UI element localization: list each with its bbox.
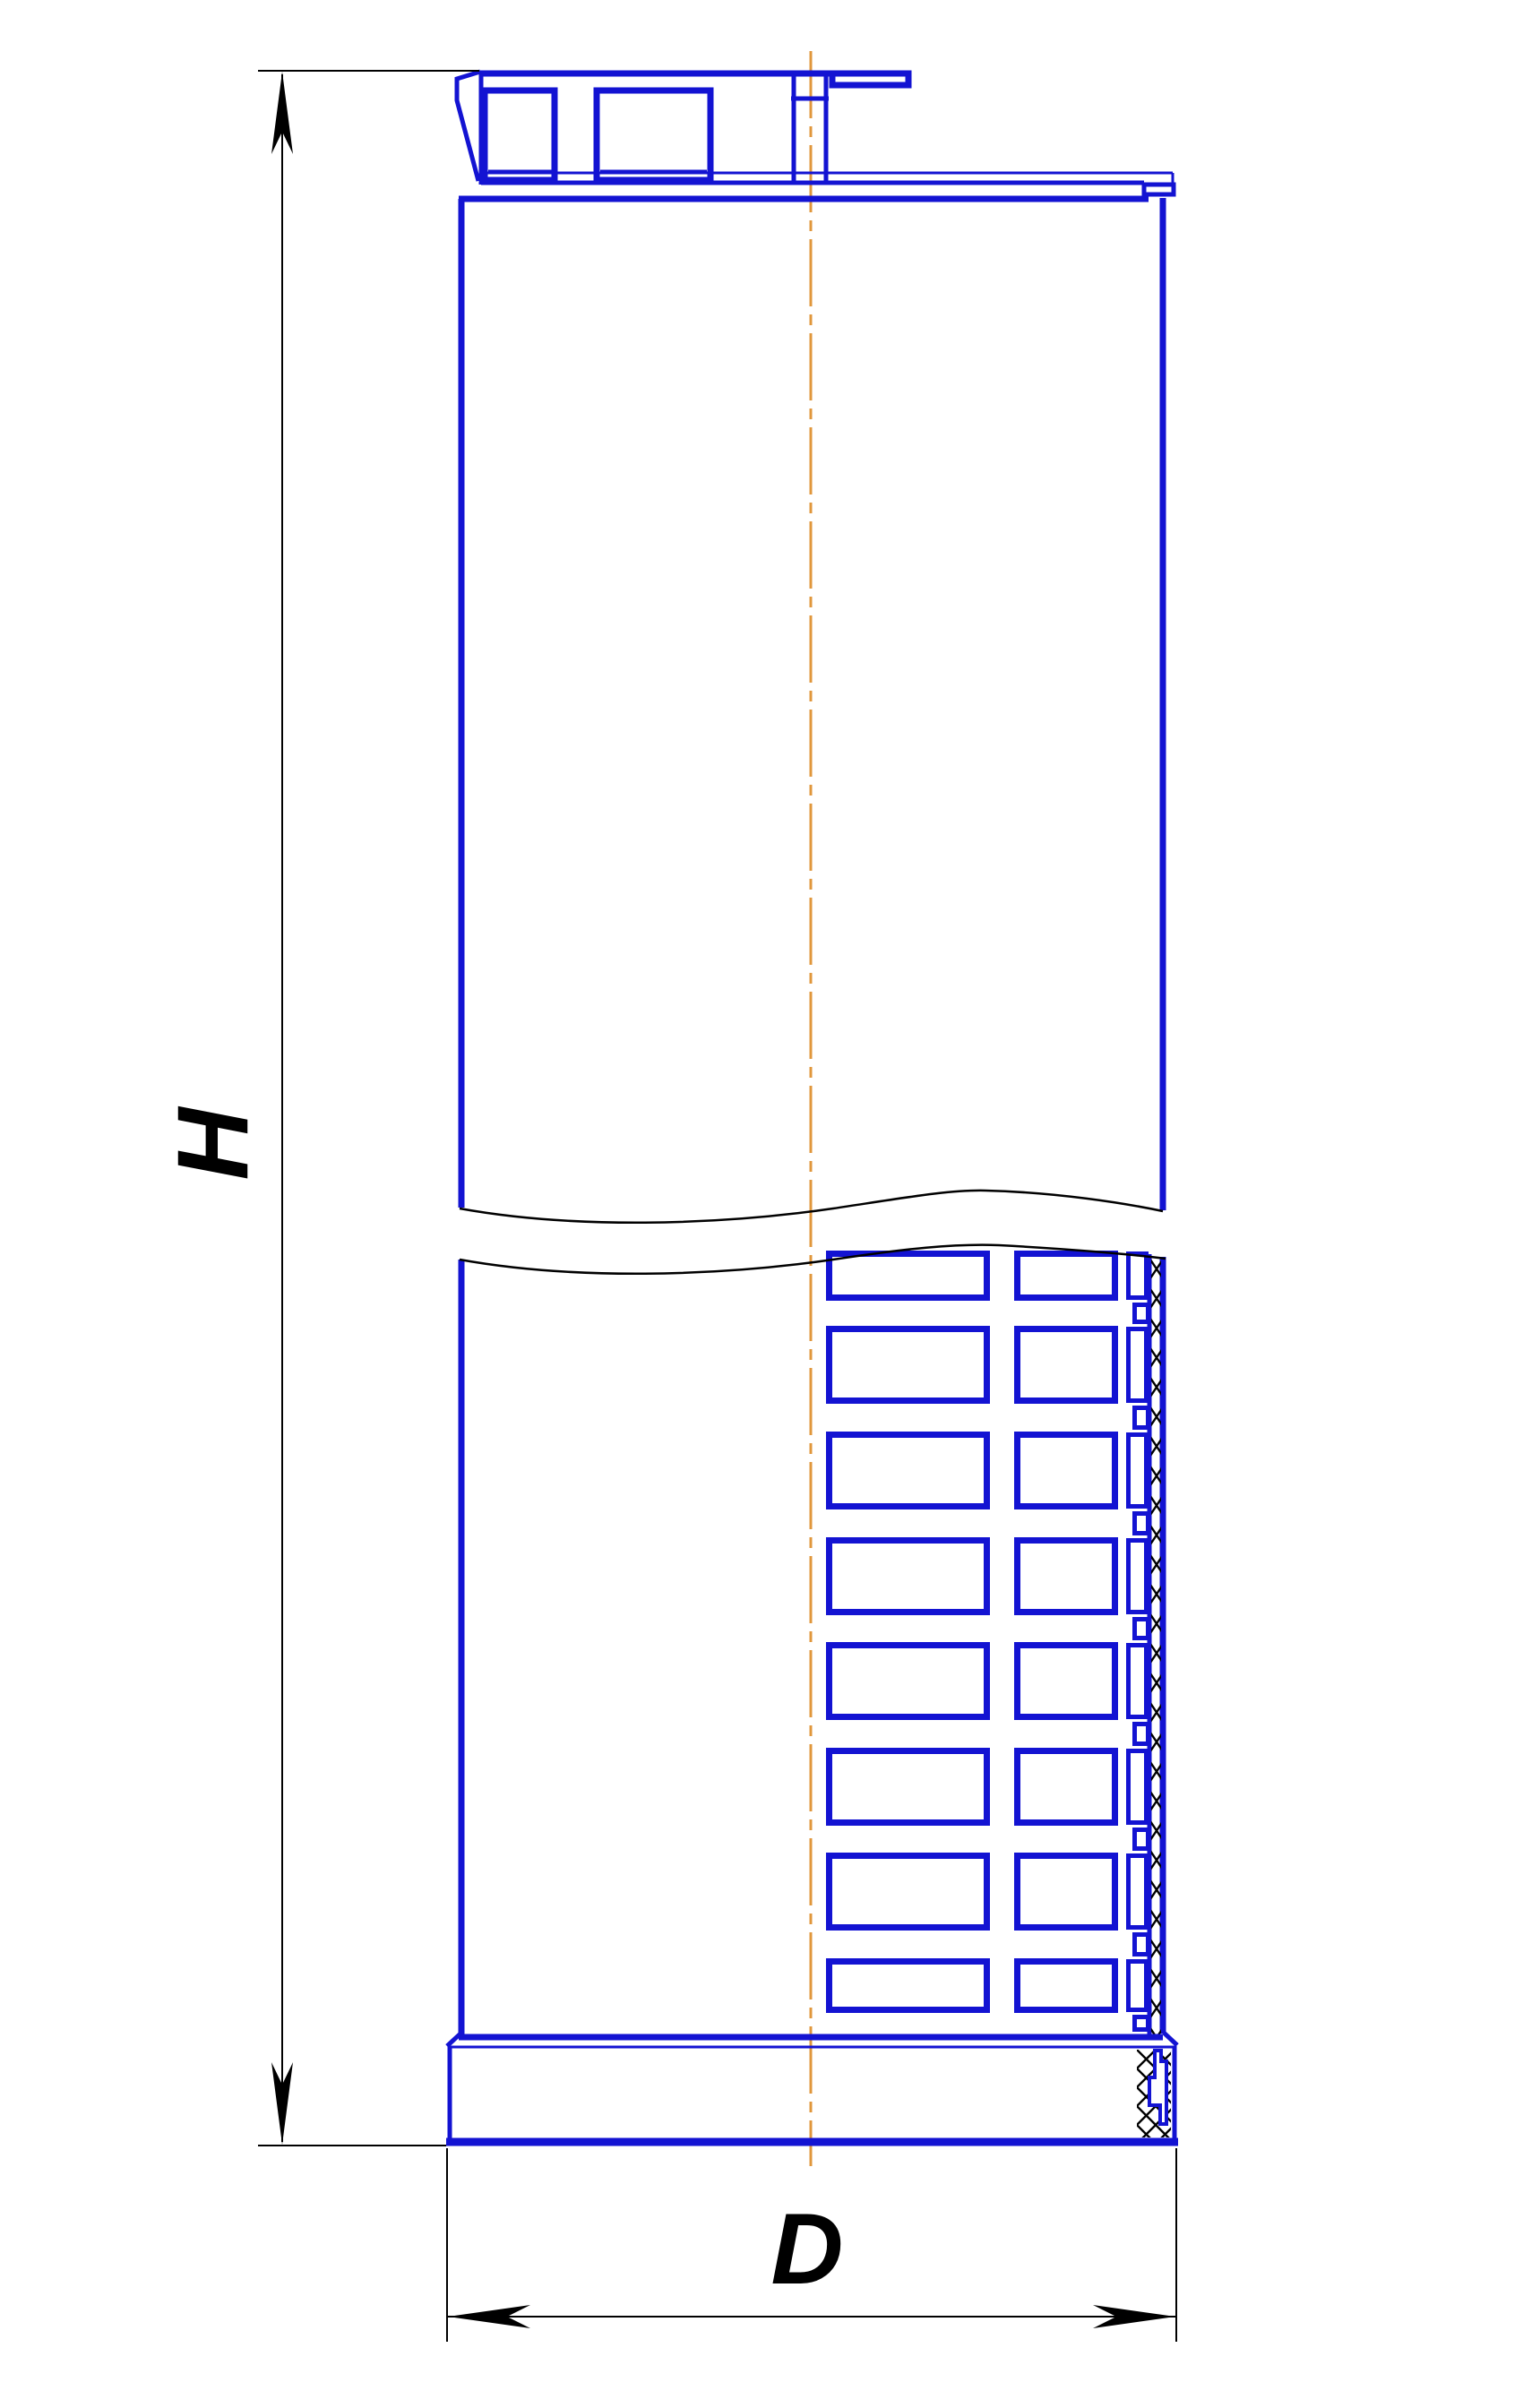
- cap-window-2: [597, 90, 710, 180]
- pleat-cell: [830, 1254, 987, 1298]
- cap-window-1: [485, 90, 555, 180]
- flange-left-chamfer: [447, 2034, 460, 2046]
- pleat-cell: [1018, 1435, 1115, 1507]
- pleat-grid: [830, 1254, 1149, 2030]
- cap-left-clip: [457, 72, 480, 181]
- pleat-cell: [830, 1856, 987, 1928]
- pleat-cell: [830, 1541, 987, 1612]
- pleat-fold-notch: [1135, 1830, 1149, 1849]
- technical-drawing: H D: [0, 0, 1523, 2408]
- pleat-cell: [830, 1646, 987, 1717]
- pleat-fold-notch: [1135, 1514, 1149, 1534]
- cap-bayonet-tab: [832, 73, 908, 85]
- cap-rim-block: [1144, 185, 1174, 194]
- flange-right-chamfer: [1164, 2033, 1177, 2045]
- pleat-fold-notch: [1135, 1305, 1149, 1322]
- height-dimension: H: [157, 71, 479, 2146]
- mesh-strip: [1149, 1254, 1161, 2035]
- pleat-cell: [1018, 1254, 1115, 1298]
- pleat-fold-notch: [1135, 1620, 1149, 1638]
- pleat-cell: [830, 1435, 987, 1507]
- pleat-fold-notch: [1135, 1935, 1149, 1955]
- mesh-hatch: [1151, 1254, 1161, 2035]
- break-lines: [460, 1191, 1166, 1274]
- pleat-fold-notch: [1135, 2017, 1149, 2030]
- pleat-cell: [1018, 1329, 1115, 1401]
- pleat-cell: [1018, 1751, 1115, 1823]
- pleat-cell: [1018, 1962, 1115, 2010]
- drawing-sheet: H D: [0, 0, 1523, 2408]
- pleat-cell: [1018, 1856, 1115, 1928]
- break-line-lower: [460, 1245, 1166, 1274]
- pleat-fold-notch: [1135, 1408, 1149, 1428]
- diameter-dimension-label: D: [771, 2193, 844, 2305]
- pleat-cell: [1018, 1541, 1115, 1612]
- height-dimension-label: H: [157, 1105, 269, 1180]
- pleat-fold-notch: [1135, 1724, 1149, 1744]
- diameter-dimension: D: [447, 2148, 1176, 2342]
- pleat-cell: [830, 1751, 987, 1823]
- pleat-cell: [830, 1329, 987, 1401]
- top-cap: [457, 72, 1174, 194]
- pleat-cell: [1018, 1646, 1115, 1717]
- pleat-cell: [830, 1962, 987, 2010]
